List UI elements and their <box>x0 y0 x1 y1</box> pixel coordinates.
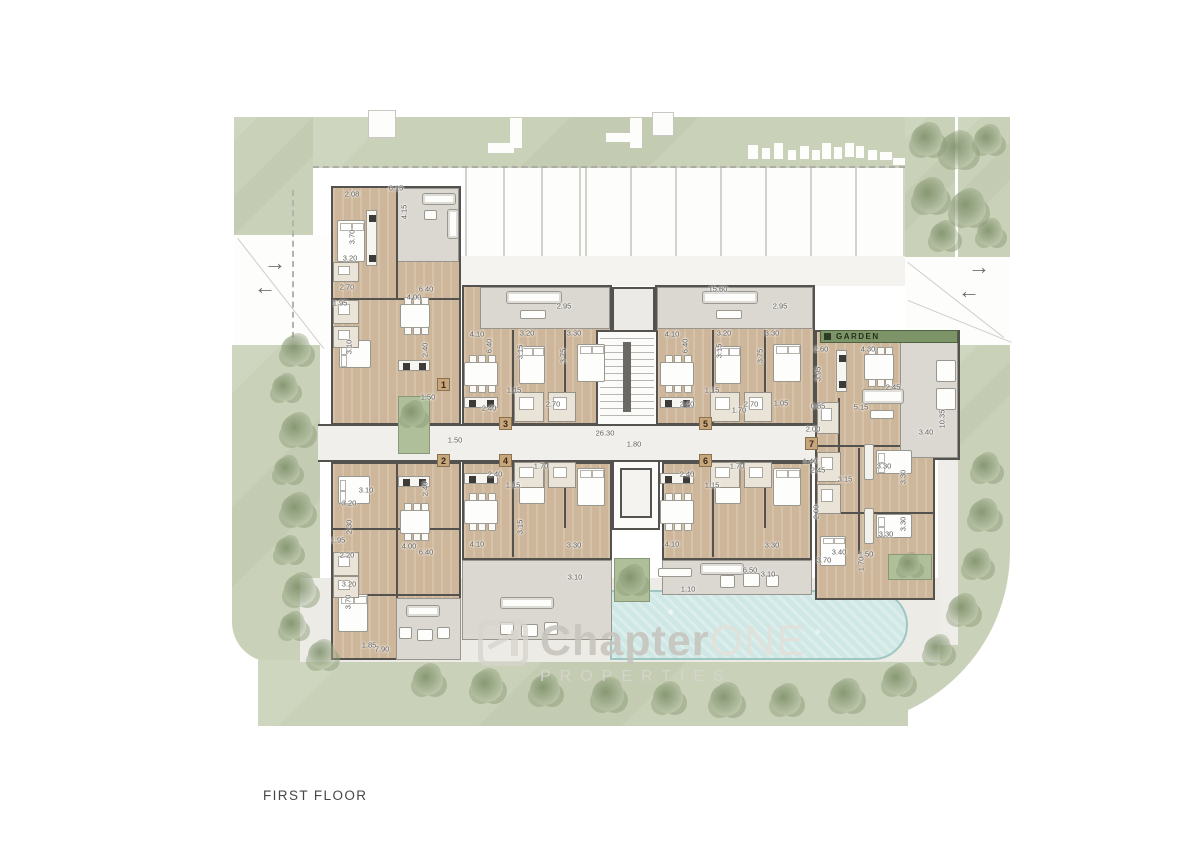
parking-divider <box>585 168 587 256</box>
dimension-label: 0.85 <box>811 402 826 411</box>
dimension-label: 3.10 <box>761 570 776 579</box>
chair <box>885 347 893 355</box>
dimension-label: 3.70 <box>344 595 353 610</box>
dimension-label: 6.40 <box>681 339 690 354</box>
garden-strip-marker <box>824 333 831 340</box>
band-planter <box>788 150 796 160</box>
bed-pillow <box>580 346 592 353</box>
tree-icon <box>940 132 976 168</box>
parking-divider <box>675 168 677 256</box>
furniture-sq <box>720 575 735 588</box>
parking-divider <box>765 168 767 256</box>
tree-icon <box>963 550 991 578</box>
chair <box>469 523 477 531</box>
parking-divider <box>541 168 543 256</box>
parking-divider <box>903 168 905 256</box>
dimension-label: 6.50 <box>743 566 758 575</box>
garden-label: GARDEN <box>836 332 880 341</box>
tree-icon <box>977 220 1003 246</box>
dimension-label: 1.50 <box>421 393 436 402</box>
dimension-label: 3.30 <box>877 462 892 471</box>
dimension-label: 3.15 <box>838 475 853 484</box>
tree-icon <box>618 566 646 594</box>
path-mark-2 <box>488 143 514 153</box>
dimension-label: 3.15 <box>715 344 724 359</box>
tree-icon <box>830 680 862 712</box>
chair <box>413 327 421 335</box>
furniture-sq <box>870 410 894 419</box>
dimension-label: 5.15 <box>854 403 869 412</box>
appliance <box>369 215 376 222</box>
dimension-label: 2.00 <box>806 425 821 434</box>
dimension-label: 2.40 <box>421 482 430 497</box>
bed-pillow <box>533 348 544 355</box>
dimension-label: 2.70 <box>546 400 561 409</box>
chair <box>665 355 673 363</box>
bed-pillow <box>788 470 800 477</box>
parking-divider <box>810 168 812 256</box>
property-line-left <box>292 190 294 338</box>
dimension-label: 3.70 <box>348 230 357 245</box>
bath-fixture <box>821 489 833 502</box>
dimension-label: 3.10 <box>568 573 583 582</box>
chair <box>404 533 412 541</box>
unit-badge-3: 3 <box>499 417 512 430</box>
bath-fixture <box>519 467 534 478</box>
furniture-table <box>660 500 694 524</box>
dimension-label: 1.05 <box>774 399 789 408</box>
furniture-sq <box>520 310 546 319</box>
furniture-counter <box>398 360 430 371</box>
tree-icon <box>592 679 624 711</box>
elevator-cab <box>620 468 652 518</box>
chair <box>684 523 692 531</box>
dimension-label: 1.50 <box>448 436 463 445</box>
dimension-label: 6.40 <box>419 548 434 557</box>
dimension-label: 2.45 <box>886 383 901 392</box>
dimension-label: 1.15 <box>705 386 720 395</box>
band-planter <box>762 148 770 159</box>
furniture-bed <box>338 594 368 632</box>
chair <box>421 297 429 305</box>
tree-icon <box>272 375 298 401</box>
dimension-label: 2.60 <box>814 345 829 354</box>
dimension-label: 4.30 <box>861 345 876 354</box>
swimming-pool <box>610 590 908 660</box>
bath-fixture <box>553 467 567 478</box>
dimension-label: 2.70 <box>340 283 355 292</box>
tree-icon <box>401 402 425 426</box>
unit-badge-1: 1 <box>437 378 450 391</box>
landscape-bottom-band <box>258 660 908 726</box>
furniture-sofa <box>447 209 459 239</box>
furniture-table <box>660 362 694 386</box>
appliance <box>403 363 410 370</box>
dimension-label: 3.10 <box>359 486 374 495</box>
bed-pillow <box>776 470 788 477</box>
band-planter <box>868 150 877 160</box>
parking-divider <box>465 168 467 256</box>
stair-rail <box>623 342 631 412</box>
chair <box>488 523 496 531</box>
chair <box>488 385 496 393</box>
furniture-table <box>864 354 894 380</box>
dimension-label: 2.95 <box>557 302 572 311</box>
tree-icon <box>281 335 311 365</box>
dimension-label: 3.15 <box>516 520 525 535</box>
tree-icon <box>308 641 336 669</box>
chair <box>478 385 486 393</box>
chair <box>469 355 477 363</box>
dimension-label: 2.70 <box>744 400 759 409</box>
bed-pillow <box>341 355 348 366</box>
band-planter <box>834 147 842 159</box>
dimension-label: 4.00 <box>402 542 417 551</box>
appliance <box>403 479 410 486</box>
furniture-sofa <box>500 597 554 609</box>
page-title: FIRST FLOOR <box>263 788 367 803</box>
chair <box>877 347 885 355</box>
dimension-label: 3.30 <box>899 517 908 532</box>
chair <box>413 533 421 541</box>
dimension-label: 2.08 <box>345 190 360 199</box>
tree-icon <box>930 222 958 250</box>
tree-icon <box>275 537 301 563</box>
furniture-sofa <box>700 563 744 575</box>
dimension-label: 3.20 <box>520 329 535 338</box>
dimension-label: 3.15 <box>516 345 525 360</box>
unit-badge-7: 7 <box>805 437 818 450</box>
furniture-bed <box>577 344 605 382</box>
landscape-right-strip <box>958 345 1010 463</box>
tree-icon <box>883 665 913 695</box>
dimension-label: 2.30 <box>345 520 354 535</box>
dimension-label: 6.15 <box>389 184 404 193</box>
dimension-label: 4.10 <box>470 330 485 339</box>
chair <box>413 503 421 511</box>
dimension-label: 3.20 <box>343 254 358 263</box>
dimension-label: 3.10 <box>345 340 354 355</box>
chair <box>674 355 682 363</box>
furniture-bath <box>817 484 841 514</box>
dimension-label: 1.70 <box>857 557 866 572</box>
furniture-sofa <box>406 605 440 617</box>
bed-pillow <box>834 538 845 544</box>
dimension-label: 2.40 <box>421 343 430 358</box>
tree-icon <box>284 574 316 606</box>
dimension-label: 3.30 <box>567 329 582 338</box>
entry-arrow-right-icon: → <box>968 256 990 278</box>
chair <box>469 493 477 501</box>
dimension-label: 1.15 <box>507 386 522 395</box>
bed-pillow <box>729 348 740 355</box>
furniture-ward <box>864 444 874 480</box>
tree-icon <box>950 190 986 226</box>
tree-icon <box>974 126 1002 154</box>
furniture-bed <box>577 468 605 506</box>
chair <box>404 327 412 335</box>
dimension-label: 1.40 <box>803 457 818 466</box>
dimension-label: 4.10 <box>665 540 680 549</box>
bath-fixture <box>715 397 730 410</box>
dimension-label: 7.90 <box>375 645 390 654</box>
unit-badge-5: 5 <box>699 417 712 430</box>
band-planter <box>856 146 864 158</box>
chair <box>674 523 682 531</box>
bath-fixture <box>749 467 763 478</box>
bed-pillow <box>340 480 347 491</box>
furniture-sq <box>743 573 760 587</box>
band-planter <box>893 158 905 165</box>
entry-arrow-left-icon: ← <box>254 276 276 298</box>
dimension-label: 3.40 <box>832 548 847 557</box>
furniture-bed <box>773 468 801 506</box>
chair <box>684 355 692 363</box>
tree-icon <box>274 457 300 483</box>
dimension-label: 3.30 <box>765 541 780 550</box>
tree-icon <box>771 685 801 715</box>
chair <box>404 503 412 511</box>
tree-icon <box>972 454 1000 482</box>
bath-fixture <box>519 397 534 410</box>
tree-icon <box>281 414 313 446</box>
furniture-table <box>464 362 498 386</box>
dimension-label: 4.10 <box>470 540 485 549</box>
furniture-ward <box>864 508 874 544</box>
chair <box>877 379 885 387</box>
garden-strip: GARDEN <box>820 330 958 343</box>
dimension-label: 2.45 <box>811 466 826 475</box>
furniture-sq <box>417 629 433 641</box>
unit-badge-2: 2 <box>437 454 450 467</box>
tree-icon <box>413 665 443 695</box>
central-corridor <box>318 424 820 462</box>
furniture-sq <box>936 360 956 382</box>
chair <box>478 523 486 531</box>
dimension-label: 2.95 <box>773 302 788 311</box>
dimension-label: 2.00 <box>812 505 821 520</box>
top-notch-2 <box>652 112 674 136</box>
tree-icon <box>530 675 560 705</box>
chair <box>665 385 673 393</box>
dimension-label: 3.30 <box>765 329 780 338</box>
appliance <box>839 355 846 362</box>
furniture-sq <box>936 388 956 410</box>
furniture-sq <box>521 624 538 637</box>
landscape-left-top-block <box>234 117 313 235</box>
parking-divider <box>630 168 632 256</box>
entry-arrow-left-icon: ← <box>958 280 980 302</box>
dimension-label: 1.10 <box>681 585 696 594</box>
bed-pillow <box>592 470 604 477</box>
chair <box>488 493 496 501</box>
top-notch-1 <box>368 110 396 138</box>
band-planter <box>774 143 783 159</box>
furniture-counter <box>366 210 377 266</box>
chair <box>684 493 692 501</box>
chair <box>421 327 429 335</box>
path-mark-4 <box>606 133 632 142</box>
furniture-bed <box>773 344 801 382</box>
floor-plan-page: GARDEN 1234567 2.086.154.153.703.202.706… <box>0 0 1200 848</box>
band-planter <box>845 143 854 157</box>
bed-pillow <box>580 470 592 477</box>
parking-divider <box>579 168 581 256</box>
unit-badge-6: 6 <box>699 454 712 467</box>
dimension-label: 3.75 <box>559 349 568 364</box>
furniture-table <box>464 500 498 524</box>
dimension-label: 1.95 <box>333 299 348 308</box>
dimension-label: 1.70 <box>534 462 549 471</box>
chair <box>421 533 429 541</box>
tree-icon <box>969 500 999 530</box>
bath-fixture <box>338 266 351 275</box>
chair <box>421 503 429 511</box>
dimension-label: 4.00 <box>407 293 422 302</box>
dimension-label: 6.40 <box>485 339 494 354</box>
furniture-sq <box>399 627 412 639</box>
appliance <box>419 363 426 370</box>
furniture-sofa <box>422 193 456 205</box>
entry-arrow-right-icon: → <box>264 252 286 274</box>
tree-icon <box>471 670 503 702</box>
chair <box>674 385 682 393</box>
dimension-label: 2.20 <box>340 551 355 560</box>
parking-divider <box>503 168 505 256</box>
dimension-label: 15.60 <box>709 285 728 294</box>
chair <box>488 355 496 363</box>
furniture-sq <box>544 622 558 635</box>
bed-pillow <box>823 538 834 544</box>
appliance <box>839 381 846 388</box>
dimension-label: 3.30 <box>879 530 894 539</box>
bed-pillow <box>788 346 800 353</box>
dimension-label: 26.30 <box>596 429 615 438</box>
furniture-bath <box>333 262 359 282</box>
dimension-label: 4.15 <box>400 205 409 220</box>
band-planter <box>812 150 820 160</box>
chair <box>868 379 876 387</box>
dimension-label: 1.15 <box>506 481 521 490</box>
furniture-sq <box>716 310 742 319</box>
dimension-label: 2.40 <box>680 400 695 409</box>
bed-pillow <box>776 346 788 353</box>
north-entrance <box>612 287 655 332</box>
property-line-top <box>313 166 905 168</box>
furniture-sq <box>658 568 692 577</box>
dimension-label: 3.95 <box>814 367 823 382</box>
chair <box>684 385 692 393</box>
dimension-label: 2.40 <box>488 470 503 479</box>
dimension-label: 3.75 <box>756 349 765 364</box>
tree-icon <box>710 684 742 716</box>
bath-fixture <box>715 467 730 478</box>
tree-icon <box>911 124 943 156</box>
chair <box>478 493 486 501</box>
tree-icon <box>653 683 683 713</box>
dimension-label: 1.15 <box>705 481 720 490</box>
furniture-sq <box>424 210 437 220</box>
dimension-label: 1.95 <box>331 536 346 545</box>
appliance <box>469 476 476 483</box>
furniture-sq <box>437 627 450 639</box>
partition-wall <box>396 188 398 300</box>
appliance <box>665 400 672 407</box>
dimension-label: 1.70 <box>730 462 745 471</box>
band-planter <box>880 152 892 160</box>
chair <box>674 493 682 501</box>
band-planter <box>800 146 809 159</box>
dimension-label: 3.30 <box>899 470 908 485</box>
band-planter <box>822 143 831 159</box>
chair <box>665 523 673 531</box>
tree-icon <box>898 554 920 576</box>
parking-area <box>463 168 905 256</box>
bath-fixture <box>338 330 351 340</box>
tree-icon <box>280 613 306 639</box>
furniture-sofa <box>506 291 562 304</box>
dimension-label: 3.40 <box>919 428 934 437</box>
dimension-label: 4.10 <box>665 330 680 339</box>
dimension-label: 3.20 <box>717 329 732 338</box>
furniture-bath <box>744 462 772 488</box>
furniture-sq <box>500 622 514 635</box>
tree-icon <box>924 636 952 664</box>
appliance <box>665 476 672 483</box>
bed-pillow <box>878 517 885 527</box>
bed-pillow <box>592 346 604 353</box>
furniture-table <box>400 304 430 328</box>
unit-badge-4: 4 <box>499 454 512 467</box>
dimension-label: 2.40 <box>680 470 695 479</box>
tree-icon <box>913 179 947 213</box>
tree-icon <box>948 595 978 625</box>
furniture-table <box>400 510 430 534</box>
furniture-counter <box>836 350 847 392</box>
chair <box>478 355 486 363</box>
tree-icon <box>281 494 313 526</box>
chair <box>469 385 477 393</box>
stair-step <box>600 338 654 339</box>
partition-wall <box>858 448 860 554</box>
dimension-label: 10.35 <box>938 410 947 429</box>
appliance <box>369 255 376 262</box>
dimension-label: 3.70 <box>817 556 832 565</box>
furniture-bath <box>514 392 544 422</box>
dimension-label: 3.20 <box>342 499 357 508</box>
stair-step <box>600 415 654 416</box>
band-planter <box>748 145 758 159</box>
parking-divider <box>855 168 857 256</box>
landscape-top-band <box>313 117 905 168</box>
furniture-bath <box>548 462 576 488</box>
appliance <box>469 400 476 407</box>
dimension-label: 3.20 <box>342 580 357 589</box>
dimension-label: 3.30 <box>567 541 582 550</box>
parking-divider <box>720 168 722 256</box>
dimension-label: 1.80 <box>627 440 642 449</box>
dimension-label: 2.40 <box>482 404 497 413</box>
chair <box>665 493 673 501</box>
